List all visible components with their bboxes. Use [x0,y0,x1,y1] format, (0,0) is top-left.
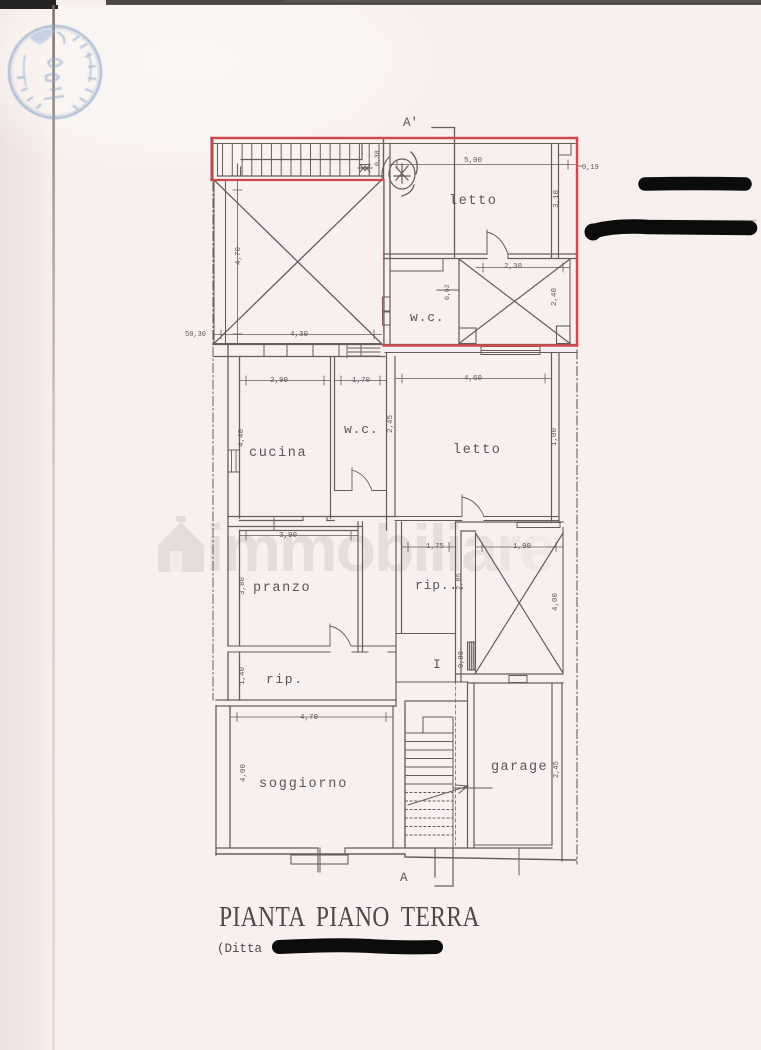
svg-text:2,30: 2,30 [504,263,523,271]
svg-text:5,00: 5,00 [464,157,483,165]
svg-text:1,90: 1,90 [513,543,532,551]
svg-text:3,90: 3,90 [279,532,298,540]
svg-text:2,45: 2,45 [553,761,561,778]
svg-text:4,30: 4,30 [290,331,309,339]
svg-text:0,38: 0,38 [374,150,381,166]
svg-text:A: A [400,871,408,885]
svg-text:4,40: 4,40 [238,428,246,447]
svg-text:soggiorno: soggiorno [259,777,348,792]
svg-text:(Ditta: (Ditta [217,942,263,956]
svg-text:0,19: 0,19 [582,164,599,172]
svg-text:2,40: 2,40 [551,287,559,306]
svg-text:4,70: 4,70 [300,714,319,722]
svg-text:3,80: 3,80 [239,576,247,595]
svg-text:I: I [433,657,441,672]
svg-text:pranzo: pranzo [253,581,311,596]
svg-text:0,62: 0,62 [444,284,451,300]
svg-text:A': A' [403,116,418,130]
svg-text:w.c.: w.c. [410,310,444,325]
svg-text:2,90: 2,90 [270,377,289,385]
svg-text:rip.: rip. [266,672,304,687]
svg-text:letto: letto [453,443,502,458]
svg-text:0,90: 0,90 [458,651,466,668]
svg-text:4,00: 4,00 [552,592,560,611]
svg-text:2,45: 2,45 [387,414,395,433]
svg-text:PIANTA PIANO TERRA: PIANTA PIANO TERRA [219,901,480,932]
svg-text:4,00: 4,00 [240,763,248,782]
svg-text:3,10: 3,10 [553,189,561,208]
svg-text:1,40: 1,40 [239,666,247,685]
svg-text:letto: letto [449,194,498,209]
svg-text:4,70: 4,70 [235,246,243,265]
svg-text:garage: garage [491,760,548,775]
svg-text:1,75: 1,75 [426,543,445,551]
svg-text:w.c.: w.c. [344,422,378,437]
svg-text:cucina: cucina [249,446,307,461]
svg-text:2,85: 2,85 [456,573,464,590]
svg-text:1,00: 1,00 [551,427,559,446]
svg-text:4,60: 4,60 [464,375,483,383]
svg-text:1,70: 1,70 [352,377,371,385]
svg-text:50,30: 50,30 [185,331,206,339]
